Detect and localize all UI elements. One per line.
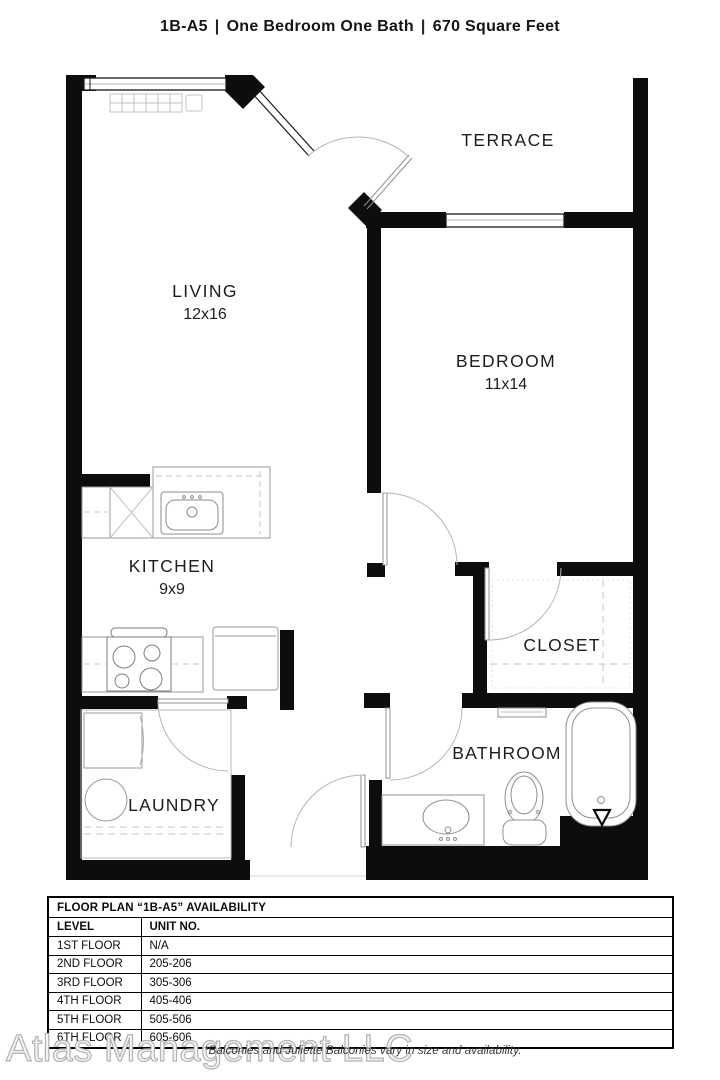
wall	[557, 562, 648, 576]
kitchen-sink-fixture	[161, 492, 223, 534]
table-row: 1ST FLOORN/A	[48, 937, 673, 956]
windows	[84, 78, 564, 227]
column-header-unit-no: UNIT NO.	[141, 918, 673, 937]
living-dims: 12x16	[183, 306, 227, 323]
door-arc	[385, 493, 457, 565]
door-arc	[291, 775, 363, 847]
laundry-fixtures	[81, 710, 231, 858]
laundry-door-panel	[158, 699, 228, 703]
wall	[367, 563, 385, 577]
table-cell: 205-206	[141, 955, 673, 974]
table-row: 3RD FLOOR305-306	[48, 974, 673, 993]
terrace-label: TERRACE	[461, 130, 554, 150]
balcony-footnote: *Balconies and Juliette Balconies vary i…	[204, 1045, 522, 1057]
wall	[66, 75, 82, 880]
table-cell: N/A	[141, 937, 673, 956]
bathroom-label: BATHROOM	[452, 743, 561, 763]
wall	[80, 474, 150, 487]
stove-counter-fixture	[82, 627, 278, 692]
wall	[225, 75, 265, 109]
wall	[66, 696, 158, 709]
door-arc	[308, 137, 409, 157]
table-row: 5TH FLOOR505-506	[48, 1011, 673, 1030]
wall	[366, 212, 446, 228]
living-label: LIVING	[172, 281, 238, 301]
table-cell: 505-506	[141, 1011, 673, 1030]
window-terrace-diagonal-2	[257, 88, 314, 151]
table-cell: 1ST FLOOR	[48, 937, 141, 956]
wall	[280, 630, 294, 710]
toilet-fixture	[503, 772, 546, 845]
stove-fixture	[107, 628, 171, 691]
closet-door-panel	[485, 568, 489, 640]
wall	[66, 860, 250, 880]
table-cell: 305-306	[141, 974, 673, 993]
window-terrace-diagonal-1	[252, 93, 309, 156]
door-arc	[489, 568, 561, 640]
closet-label: CLOSET	[523, 635, 600, 655]
door-arc	[158, 701, 228, 771]
table-cell: 5TH FLOOR	[48, 1011, 141, 1030]
availability-table-title-row: FLOOR PLAN “1B-A5” AVAILABILITY	[48, 897, 673, 918]
heater-fixture	[110, 94, 202, 112]
laundry-tub-fixture	[85, 779, 127, 821]
laundry-label: LAUNDRY	[128, 795, 220, 815]
closet-shelving	[490, 580, 630, 688]
kitchen-dims: 9x9	[159, 581, 185, 598]
washer-fixture	[84, 713, 142, 768]
wall	[227, 696, 247, 709]
fridge-fixture	[213, 627, 278, 690]
table-cell: 3RD FLOOR	[48, 974, 141, 993]
wall	[364, 693, 390, 708]
table-cell: 4TH FLOOR	[48, 992, 141, 1011]
availability-table-header-row: LEVEL UNIT NO.	[48, 918, 673, 937]
kitchen-label: KITCHEN	[129, 556, 216, 576]
availability-table-title: FLOOR PLAN “1B-A5” AVAILABILITY	[48, 897, 673, 918]
table-row: 4TH FLOOR405-406	[48, 992, 673, 1011]
door-arc	[390, 708, 462, 780]
vanity-sink-fixture	[382, 795, 484, 845]
wall	[231, 775, 245, 862]
availability-table: FLOOR PLAN “1B-A5” AVAILABILITY LEVEL UN…	[47, 896, 674, 1049]
bedroom-label: BEDROOM	[456, 351, 556, 371]
column-header-level: LEVEL	[48, 918, 141, 937]
terrace-door-panel	[364, 155, 409, 206]
wall	[455, 562, 489, 576]
bathroom-door-panel	[386, 708, 390, 778]
entry-door-panel	[361, 775, 365, 847]
bathtub-fixture	[566, 702, 636, 826]
table-cell: 405-406	[141, 992, 673, 1011]
window-bedroom	[446, 214, 564, 227]
wall	[367, 228, 381, 493]
table-row: 2ND FLOOR205-206	[48, 955, 673, 974]
laundry-room-outline	[81, 710, 231, 858]
table-cell: 2ND FLOOR	[48, 955, 141, 974]
wall	[366, 846, 648, 880]
bedroom-door-panel	[383, 493, 387, 565]
bedroom-dims: 11x14	[485, 376, 528, 393]
wall	[369, 780, 382, 846]
